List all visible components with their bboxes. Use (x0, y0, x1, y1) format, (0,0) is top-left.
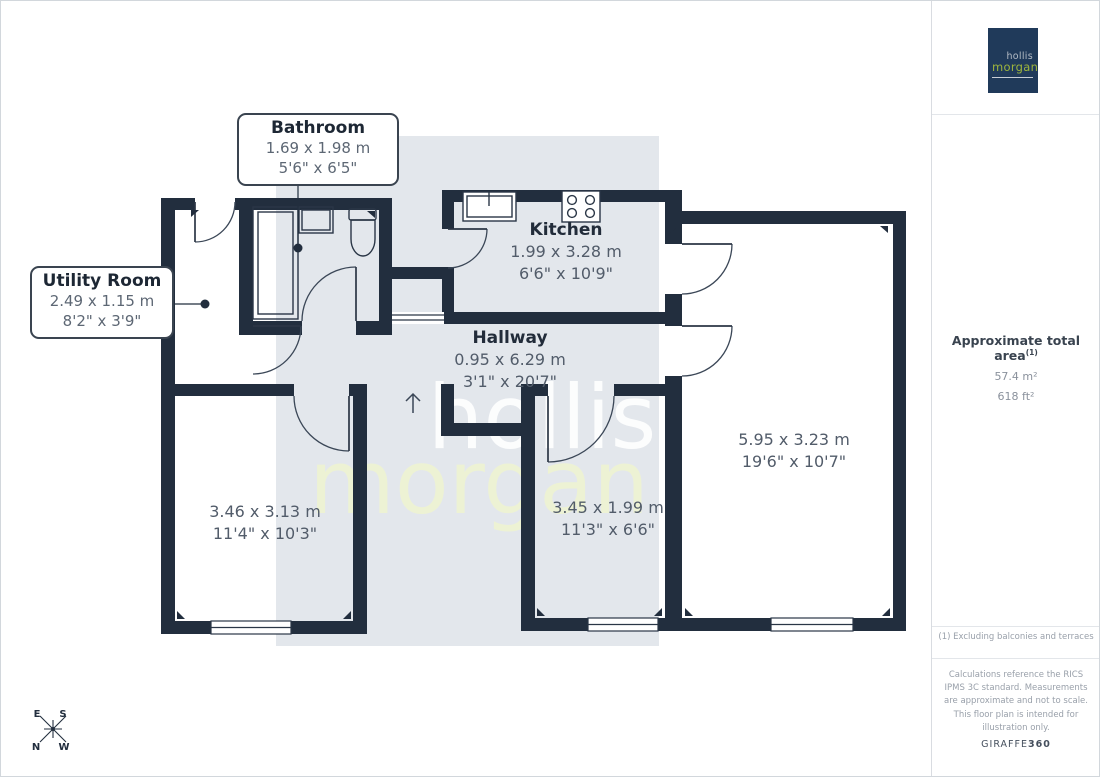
bathroom-name: Bathroom (245, 118, 391, 139)
compass: E S N W (32, 709, 70, 753)
bottom-left-room-imperial: 11'4" x 10'3" (155, 523, 375, 545)
utility-room-imperial: 8'2" x 3'9" (38, 312, 166, 332)
sidebar-rule-top (932, 114, 1099, 115)
hob-icon (562, 191, 600, 222)
area-metric: 57.4 m² (931, 370, 1100, 383)
sidebar-rule-bottom (932, 658, 1099, 659)
hallway-name: Hallway (400, 327, 620, 349)
area-footnote: (1) Excluding balconies and terraces (931, 632, 1100, 642)
hollis-morgan-logo: hollis morgan (988, 28, 1038, 93)
sidebar-rule-mid (932, 626, 1099, 627)
right-room-label: 5.95 x 3.23 m 19'6" x 10'7" (684, 429, 904, 473)
kitchen-name: Kitchen (456, 219, 676, 241)
bottom-left-room-metric: 3.46 x 3.13 m (155, 501, 375, 523)
bottom-middle-room-label: 3.45 x 1.99 m 11'3" x 6'6" (498, 497, 718, 541)
compass-north-label: N (32, 742, 40, 753)
kitchen-imperial: 6'6" x 10'9" (456, 263, 676, 285)
total-area-block: Approximate total area(1) 57.4 m² 618 ft… (931, 333, 1100, 403)
right-room-metric: 5.95 x 3.23 m (684, 429, 904, 451)
area-imperial: 618 ft² (931, 390, 1100, 403)
right-room-imperial: 19'6" x 10'7" (684, 451, 904, 473)
hallway-label: Hallway 0.95 x 6.29 m 3'1" x 20'7" (400, 327, 620, 393)
bottom-middle-room-metric: 3.45 x 1.99 m (498, 497, 718, 519)
floorplan-page: hollis morgan (0, 0, 1100, 777)
logo-line2: morgan (992, 61, 1033, 73)
bottom-middle-room-imperial: 11'3" x 6'6" (498, 519, 718, 541)
hallway-imperial: 3'1" x 20'7" (400, 371, 620, 393)
bathroom-callout: Bathroom 1.69 x 1.98 m 5'6" x 6'5" (237, 113, 399, 186)
compass-south-label: S (59, 709, 66, 720)
compass-west-label: W (58, 742, 69, 753)
utility-room-name: Utility Room (38, 271, 166, 292)
sliding-door (392, 312, 444, 324)
compass-east-label: E (34, 709, 41, 720)
logo-rule (992, 77, 1033, 78)
utility-room-callout: Utility Room 2.49 x 1.15 m 8'2" x 3'9" (30, 266, 174, 339)
kitchen-label: Kitchen 1.99 x 3.28 m 6'6" x 10'9" (456, 219, 676, 285)
area-note-marker: (1) (1026, 348, 1038, 357)
credit-number: 360 (1028, 739, 1051, 750)
credit-name: GIRAFFE (981, 739, 1028, 750)
bottom-left-room-label: 3.46 x 3.13 m 11'4" x 10'3" (155, 501, 375, 545)
utility-room-metric: 2.49 x 1.15 m (38, 292, 166, 312)
disclaimer-text: Calculations reference the RICS IPMS 3C … (940, 669, 1092, 735)
area-title: Approximate total area (952, 333, 1080, 363)
bathroom-metric: 1.69 x 1.98 m (245, 139, 391, 159)
giraffe360-credit: GIRAFFE360 (931, 739, 1100, 750)
kitchen-metric: 1.99 x 3.28 m (456, 241, 676, 263)
hallway-metric: 0.95 x 6.29 m (400, 349, 620, 371)
bathroom-imperial: 5'6" x 6'5" (245, 159, 391, 179)
